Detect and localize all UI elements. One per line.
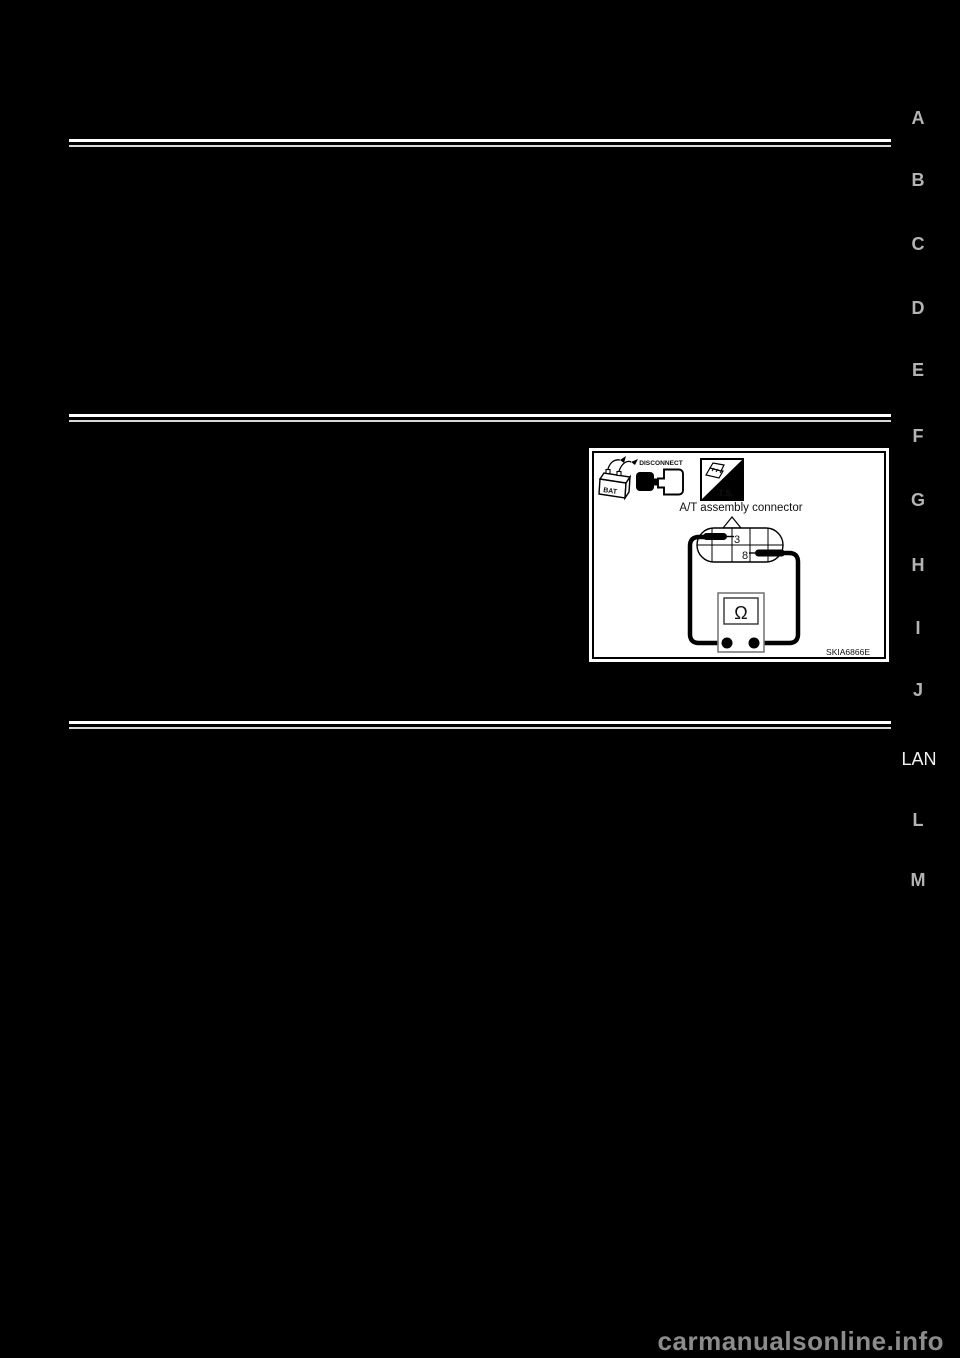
section-index-letter-h: H: [904, 554, 932, 576]
section-index-letter-f: F: [904, 425, 932, 447]
section-index-letter-c: C: [904, 233, 932, 255]
section-index-letter-g: G: [904, 489, 932, 511]
current-section-label: LAN: [896, 748, 942, 770]
section-index-letter-i: I: [904, 617, 932, 639]
section-index-letter-d: D: [904, 297, 932, 319]
connector-pin-3-label: 3: [734, 534, 740, 546]
connector-pointer-triangle: [723, 517, 741, 528]
section-divider-top: [69, 139, 891, 147]
disconnect-icon-label: DISCONNECT: [639, 460, 683, 467]
section-index-letter-a: A: [904, 107, 932, 129]
section-index-letter-b: B: [904, 169, 932, 191]
connector-pin-8-label: 8: [742, 550, 748, 562]
disconnect-plug-right: [658, 470, 683, 495]
disconnect-plug-left: [636, 472, 654, 491]
section-index-letter-e: E: [904, 359, 932, 381]
meter-terminal-left: [722, 638, 733, 649]
figure-code: SKIA6866E: [826, 647, 870, 657]
test-switch-icon-label: T.S.: [718, 488, 734, 498]
ohmmeter: Ω: [718, 593, 764, 652]
manual-page: A B C D E F G H I J LAN L M BAT: [0, 0, 960, 1358]
section-index-letter-j: J: [904, 679, 932, 701]
disconnect-icon: DISCONNECT: [636, 460, 683, 495]
section-index-letter-m: M: [904, 869, 932, 891]
watermark: carmanualsonline.info: [658, 1326, 944, 1357]
figure-caption: A/T assembly connector: [679, 502, 802, 514]
ohm-symbol: Ω: [734, 603, 747, 623]
section-divider-bottom: [69, 721, 891, 729]
section-index-letter-l: L: [904, 809, 932, 831]
figure-drawing: BAT DISCONNECT T.S. A/T assembly connect…: [589, 448, 889, 662]
meter-lead-right: [760, 553, 798, 643]
section-divider-middle: [69, 414, 891, 422]
battery-icon: BAT: [599, 456, 638, 498]
probe-left: [703, 533, 727, 540]
figure-at-connector-check: BAT DISCONNECT T.S. A/T assembly connect…: [589, 448, 889, 662]
probe-right: [755, 550, 785, 557]
test-switch-icon: T.S.: [701, 459, 743, 500]
meter-terminal-right: [749, 638, 760, 649]
